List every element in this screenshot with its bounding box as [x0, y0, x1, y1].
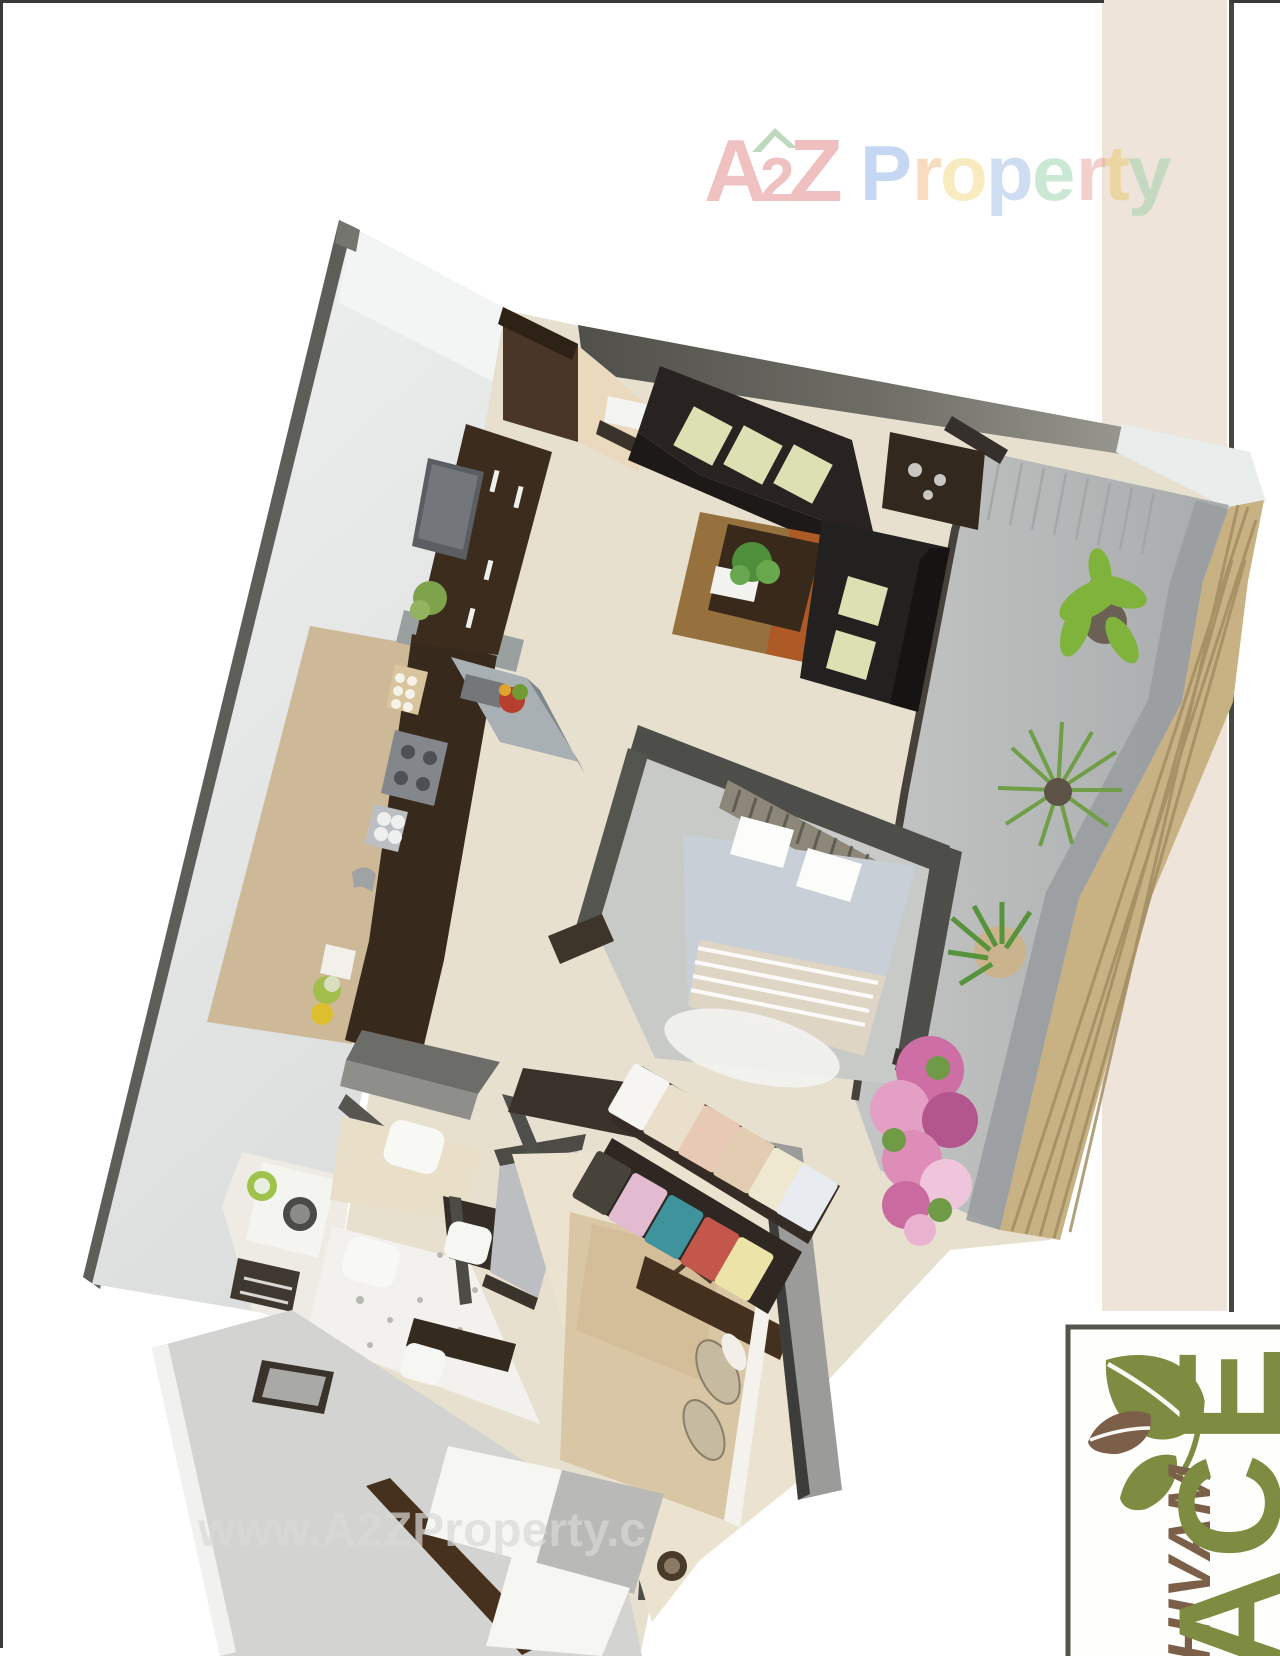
- svg-text:t: t: [1104, 129, 1130, 217]
- svg-text:P: P: [860, 129, 912, 217]
- svg-text:r: r: [1076, 129, 1106, 217]
- svg-text:p: p: [986, 129, 1034, 217]
- svg-text:A: A: [704, 121, 768, 220]
- svg-text:o: o: [940, 129, 988, 217]
- svg-text:e: e: [1032, 129, 1075, 217]
- svg-text:www.A2ZProperty.c: www.A2ZProperty.c: [197, 1504, 646, 1557]
- svg-text:RACE: RACE: [1148, 1336, 1280, 1656]
- svg-text:r: r: [912, 129, 942, 217]
- svg-text:Z: Z: [789, 121, 843, 220]
- svg-text:y: y: [1128, 129, 1171, 217]
